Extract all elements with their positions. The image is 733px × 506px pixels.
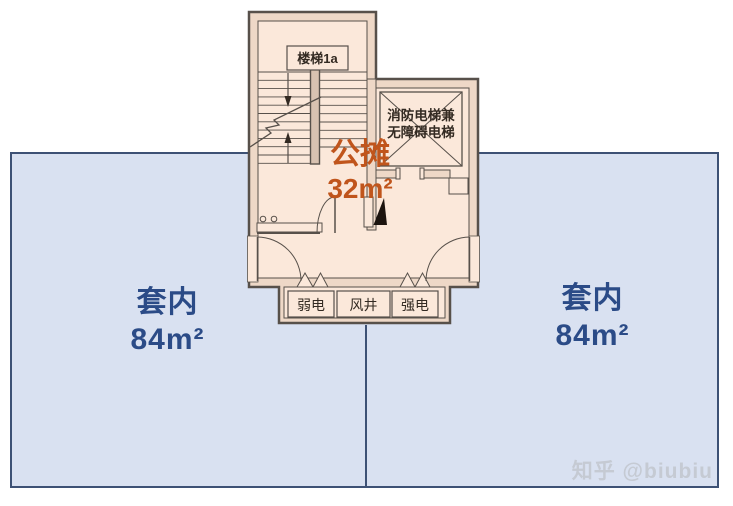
elevator-label-line2: 无障碍电梯 <box>386 124 455 140</box>
stair-label: 楼梯1a <box>297 51 338 66</box>
right-door-threshold <box>469 236 480 282</box>
wall-notch <box>449 178 468 194</box>
left-unit-name: 套内 <box>95 284 240 321</box>
common-area-value: 32m² <box>327 173 392 204</box>
core-floor-plan: 弱电 风井 强电 消防电梯兼 无障碍电梯 <box>243 8 485 328</box>
left-unit-label: 套内 84m² <box>95 284 240 358</box>
unit-divider-wall <box>365 325 367 488</box>
air-shaft-label: 风井 <box>350 297 378 313</box>
stair-railing <box>311 68 320 164</box>
right-unit-area: 84m² <box>520 317 665 354</box>
strong-power-label: 强电 <box>401 297 429 313</box>
floorplan-image: 套内 84m² 套内 84m² 弱电 风井 强电 <box>0 0 733 506</box>
elevator-label-line1: 消防电梯兼 <box>387 107 455 123</box>
right-unit-name: 套内 <box>520 280 665 317</box>
watermark: 知乎 @biubiu <box>413 455 713 485</box>
right-unit-label: 套内 84m² <box>520 280 665 354</box>
stair-step <box>257 223 322 232</box>
left-unit-area: 84m² <box>95 321 240 358</box>
service-protrusion: 弱电 风井 强电 <box>284 287 445 318</box>
weak-power-label: 弱电 <box>297 297 325 313</box>
left-door-threshold <box>248 236 259 282</box>
common-area-label: 公摊 <box>330 138 390 171</box>
